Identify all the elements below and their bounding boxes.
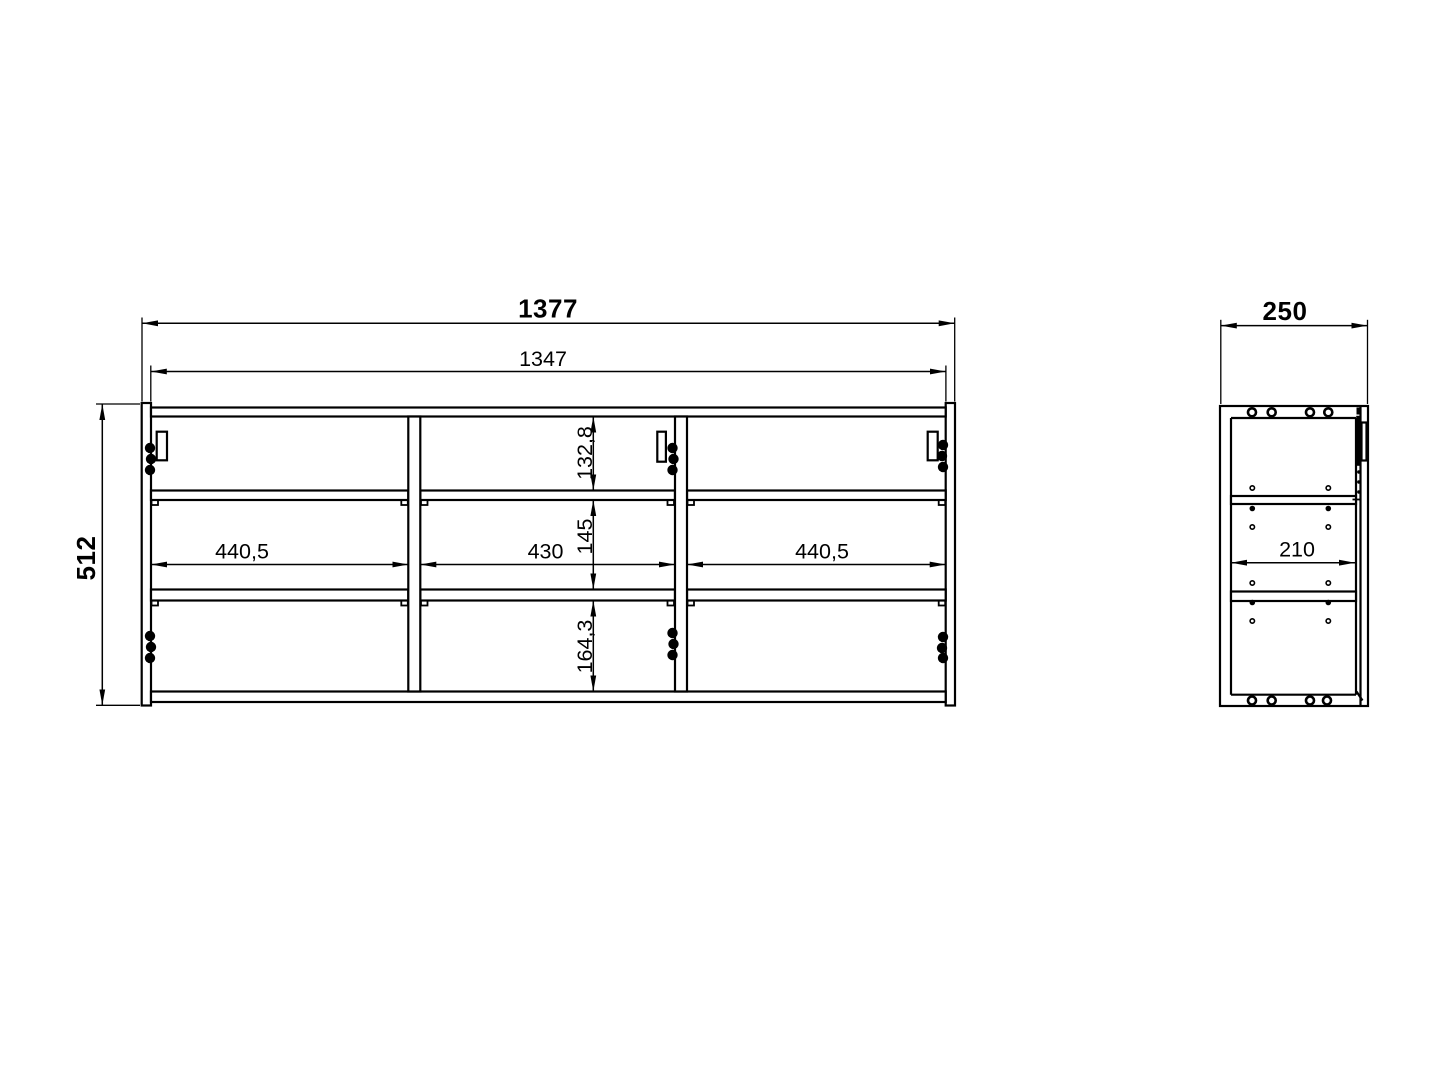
dim-height-value: 512 [71, 536, 101, 581]
dim-compartment-width-left-value: 440,5 [215, 540, 269, 564]
dim-compartment-width-right-value: 440,5 [795, 540, 849, 564]
dim-compartment-height-bottom-value: 164,3 [573, 620, 597, 674]
divider-left [408, 417, 420, 692]
pin-hole-filled [1326, 600, 1332, 606]
hinge-top-left [145, 443, 156, 475]
pin-hole [1250, 525, 1254, 529]
shelf-bottom-right [687, 590, 946, 601]
pin-hole [1250, 619, 1254, 623]
hinge-bottom-middle [667, 628, 678, 660]
hinge-door-plate [1362, 423, 1367, 461]
screw-hole [1268, 408, 1276, 416]
hinge-screw-dot [1357, 470, 1360, 473]
hinge-plate-right [928, 432, 938, 461]
pin-hole-filled [1326, 506, 1332, 512]
shelf-bottom-middle [420, 590, 675, 601]
pin-hole [1250, 486, 1254, 490]
side-shelf-bottom [1231, 592, 1356, 602]
bottom-panel [151, 692, 946, 703]
drawing-canvas: 1377 1347 512 440,5 430 [0, 0, 1448, 1086]
pin-hole [1250, 581, 1254, 585]
screw-hole [1323, 697, 1331, 705]
pin-hole [1326, 581, 1330, 585]
dim-inner-depth-value: 210 [1279, 538, 1315, 562]
technical-drawing-svg: 1377 1347 512 440,5 430 [0, 0, 1448, 1086]
pin-hole [1326, 525, 1330, 529]
dim-depth-value: 250 [1263, 296, 1308, 326]
screw-hole [1248, 697, 1256, 705]
hinge-bottom-right [937, 632, 948, 663]
hinge-top-middle [667, 443, 678, 475]
side-shelf-top [1231, 496, 1356, 504]
pin-hole [1326, 486, 1330, 490]
hinge-top-mark [1357, 408, 1362, 415]
screw-hole [1324, 408, 1332, 416]
dim-compartment-height-middle-value: 145 [573, 519, 597, 555]
screw-hole [1306, 408, 1314, 416]
hinge-bottom-left [145, 631, 156, 663]
dim-compartment-height-top: 132,8 [573, 417, 597, 491]
screw-hole [1248, 408, 1256, 416]
shelf-top-middle [420, 491, 675, 501]
screw-hole [1306, 697, 1314, 705]
shelf-top-right [687, 491, 946, 501]
shelf-bottom-left [151, 590, 408, 601]
pin-hole-filled [1250, 600, 1256, 606]
dim-inner-width-value: 1347 [519, 347, 567, 371]
hinge-screw-dot [1357, 490, 1360, 493]
dim-compartment-width-middle-value: 430 [528, 540, 564, 564]
hinge-screw-dot [1357, 480, 1360, 483]
pin-hole [1326, 619, 1330, 623]
hinge-plate-middle [657, 432, 666, 462]
top-panel [151, 408, 946, 417]
hinge-plate-left [157, 432, 167, 461]
screw-hole [1268, 697, 1276, 705]
shelf-top-left [151, 491, 408, 501]
dim-compartment-height-top-value: 132,8 [573, 426, 597, 480]
pin-hole-filled [1250, 506, 1256, 512]
dim-overall-width-value: 1377 [518, 294, 578, 324]
